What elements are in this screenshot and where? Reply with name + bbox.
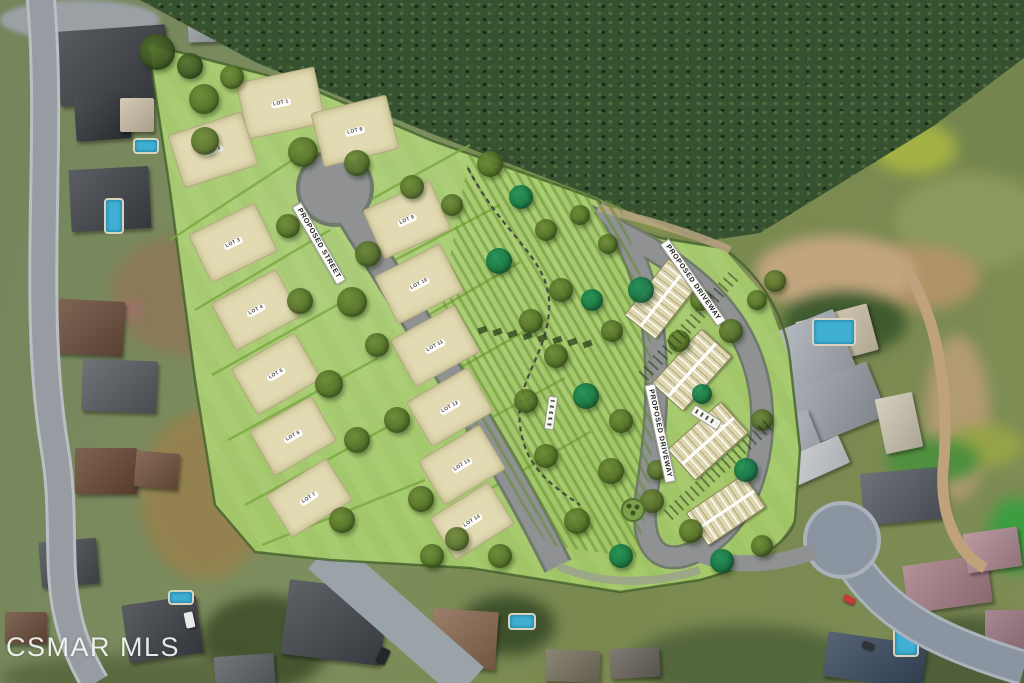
tree — [384, 407, 410, 433]
tree — [445, 527, 469, 551]
lot-label: LOT 9 — [397, 213, 418, 227]
tree — [220, 65, 244, 89]
tree — [692, 384, 712, 404]
lot-label: LOT 12 — [438, 398, 461, 415]
lot-label: LOT 1 — [271, 98, 292, 109]
tree — [344, 427, 370, 453]
tree — [609, 544, 633, 568]
tree — [601, 320, 623, 342]
tree — [679, 519, 703, 543]
tree — [420, 544, 444, 568]
tree — [486, 248, 512, 274]
tree — [734, 458, 758, 482]
tree — [573, 383, 599, 409]
tree — [598, 458, 624, 484]
tree — [477, 151, 503, 177]
lot-label: LOT 5 — [266, 366, 287, 382]
tree — [315, 370, 343, 398]
lot-label: LOT 13 — [450, 456, 473, 474]
tree — [355, 241, 381, 267]
lot-label: LOT 6 — [283, 428, 304, 444]
tree — [535, 219, 557, 241]
tree — [549, 278, 573, 302]
vine-block — [552, 336, 563, 345]
lot-label: LOT 14 — [460, 512, 483, 530]
vine-block — [582, 340, 593, 349]
tree — [365, 333, 389, 357]
plan-items-layer: LOT 1LOT 2LOT 3LOT 4LOT 5LOT 6LOT 7LOT 8… — [0, 0, 1024, 683]
tree — [751, 535, 773, 557]
tree — [747, 290, 767, 310]
tree — [509, 185, 533, 209]
tree — [288, 137, 318, 167]
tree — [400, 175, 424, 199]
round-planter — [621, 498, 645, 522]
tree — [570, 205, 590, 225]
aerial-site-plan-view: LOT 1LOT 2LOT 3LOT 4LOT 5LOT 6LOT 7LOT 8… — [0, 0, 1024, 683]
lot-label: LOT 10 — [407, 276, 430, 293]
tree — [139, 34, 175, 70]
vine-block — [492, 328, 503, 337]
tree — [710, 549, 734, 573]
tree — [189, 84, 219, 114]
tree — [534, 444, 558, 468]
tree — [488, 544, 512, 568]
tree — [276, 214, 300, 238]
tree — [581, 289, 603, 311]
tree — [177, 53, 203, 79]
lot-label: LOT 4 — [246, 302, 267, 317]
tree — [519, 309, 543, 333]
tree — [514, 389, 538, 413]
tree — [628, 277, 654, 303]
tree — [764, 270, 786, 292]
tree — [337, 287, 367, 317]
tree — [564, 508, 590, 534]
lot-pad: LOT 3 — [188, 203, 278, 284]
vine-block — [477, 326, 488, 335]
tree — [344, 150, 370, 176]
vine-block — [567, 338, 578, 347]
vine-block — [507, 330, 518, 339]
tree — [544, 344, 568, 368]
lot-label: LOT 7 — [299, 490, 319, 506]
tree — [191, 127, 219, 155]
tree — [408, 486, 434, 512]
tree — [441, 194, 463, 216]
lot-label: LOT 3 — [223, 236, 244, 251]
townhome-building — [652, 328, 733, 411]
mls-watermark: CSMAR MLS — [6, 632, 180, 663]
lot-pad: LOT 1 — [236, 66, 326, 139]
tree — [609, 409, 633, 433]
tree — [287, 288, 313, 314]
lot-label: LOT 11 — [423, 337, 446, 354]
tree — [598, 234, 618, 254]
lot-label: LOT 8 — [345, 125, 366, 137]
vine-block — [537, 334, 548, 343]
tree — [329, 507, 355, 533]
